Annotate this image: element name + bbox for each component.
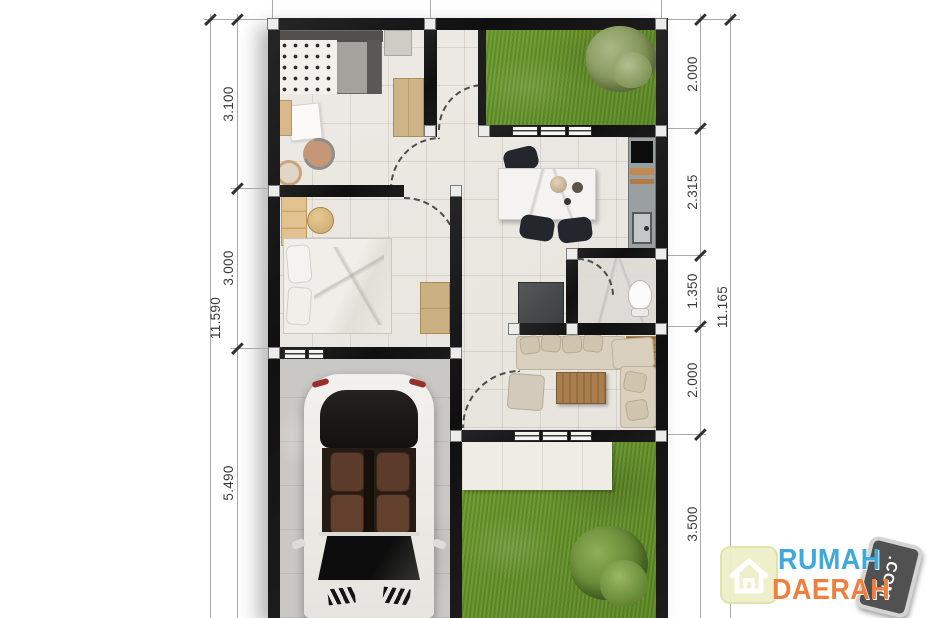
bed-blanket xyxy=(367,40,381,94)
wall-bedroom1-bedroom2 xyxy=(268,185,404,197)
wall-post xyxy=(655,430,667,442)
wall-bathroom-top xyxy=(566,248,668,258)
sofa-cushion xyxy=(561,334,582,353)
toilet xyxy=(628,280,652,318)
dimension-label: 2.000 xyxy=(685,338,701,422)
wall-post xyxy=(267,18,279,30)
toilet-bowl xyxy=(628,280,652,310)
wall-post xyxy=(424,125,436,137)
desk-papers xyxy=(287,102,323,141)
sofa-cushion xyxy=(625,398,650,421)
dimension-label: 3.100 xyxy=(221,62,237,146)
wall-post xyxy=(655,18,667,30)
car-windshield xyxy=(318,536,420,580)
car-seat xyxy=(376,452,410,492)
closet xyxy=(420,282,450,334)
car xyxy=(304,374,434,618)
wall-post xyxy=(655,125,667,137)
sofa-cushion xyxy=(622,370,647,394)
wall-living-top xyxy=(508,323,668,335)
car-seat xyxy=(376,494,410,534)
extension-line xyxy=(430,0,431,19)
bed-duvet xyxy=(279,40,337,94)
duvet-fold xyxy=(314,247,384,325)
car-hood-vent xyxy=(382,587,411,606)
wall-post xyxy=(566,248,578,260)
counter-shelf xyxy=(630,168,654,175)
dimension-label: 1.350 xyxy=(685,249,701,333)
tree xyxy=(612,52,652,88)
sofa-corner xyxy=(611,337,655,370)
bed-double xyxy=(278,30,382,94)
wall-garden-left xyxy=(478,30,486,137)
floor-plan-page: 3.100 3.000 5.490 11.590 2.000 2.315 1.3… xyxy=(0,0,927,618)
car-seat xyxy=(330,494,364,534)
window xyxy=(568,126,592,136)
cooktop xyxy=(631,141,653,163)
car-rear-deck xyxy=(320,390,418,448)
tree xyxy=(600,560,648,606)
toilet-tank xyxy=(631,308,649,317)
wall-post xyxy=(508,323,520,335)
dimension-label-total: 11.590 xyxy=(208,276,224,360)
bed-white xyxy=(283,238,392,334)
faucet xyxy=(644,226,649,231)
extension-line xyxy=(661,0,662,19)
dimension-label: 3.500 xyxy=(685,482,701,566)
wall-post xyxy=(268,347,280,359)
pillow xyxy=(285,244,312,284)
counter-shelf xyxy=(630,179,654,184)
window xyxy=(570,431,592,441)
car-seat xyxy=(330,452,364,492)
wall-post xyxy=(655,248,667,260)
wall-post xyxy=(450,347,462,359)
sink xyxy=(632,212,652,244)
sofa-cushion xyxy=(582,333,604,353)
window xyxy=(512,126,538,136)
dimension-line-left xyxy=(237,14,238,618)
wall-interior-vertical xyxy=(450,185,462,618)
extension-line xyxy=(272,0,273,19)
kitchen-chair xyxy=(518,213,555,242)
bed-bench xyxy=(384,30,412,56)
kitchen-chair xyxy=(557,216,594,244)
dimension-label: 5.490 xyxy=(221,441,237,525)
pillow xyxy=(286,286,313,326)
window xyxy=(308,349,324,359)
watermark-logo: .COM RUMAH DAERAH xyxy=(714,538,920,618)
terrace xyxy=(462,442,612,490)
window xyxy=(542,431,568,441)
car-console xyxy=(364,450,374,534)
wall-post xyxy=(478,125,490,137)
wall-bathroom-left xyxy=(566,248,578,335)
wardrobe xyxy=(393,78,424,137)
sofa-cushion xyxy=(519,335,541,356)
bowl xyxy=(550,176,567,193)
wall-post xyxy=(655,323,667,335)
window xyxy=(540,126,566,136)
logo-word-daerah: DAERAH xyxy=(772,574,890,607)
coffee-table xyxy=(556,372,606,404)
dimension-label-total: 11.165 xyxy=(715,265,731,349)
window xyxy=(514,431,540,441)
wall-exterior-right xyxy=(656,18,668,618)
wall-post xyxy=(450,185,462,197)
wall-post xyxy=(566,323,578,335)
car-cabin xyxy=(322,448,416,534)
kitchen-counter xyxy=(628,137,656,250)
dimension-label: 2.000 xyxy=(685,32,701,116)
bowl xyxy=(564,198,571,205)
sofa-cushion xyxy=(540,333,561,353)
stool xyxy=(307,207,334,234)
car-rollbar xyxy=(318,532,420,536)
kitchen-island xyxy=(498,168,596,220)
house-icon xyxy=(720,546,778,604)
car-hood-vent xyxy=(327,587,356,606)
wall-post xyxy=(450,430,462,442)
wall-post xyxy=(268,185,280,197)
wall-bedroom1-right xyxy=(424,18,437,137)
wall-post xyxy=(424,18,436,30)
logo-word-rumah: RUMAH xyxy=(778,544,881,577)
bowl xyxy=(572,182,583,193)
utility-cabinet xyxy=(518,282,564,324)
dimension-label: 2.315 xyxy=(685,150,701,234)
window xyxy=(284,349,306,359)
wall-exterior-left xyxy=(268,18,280,618)
